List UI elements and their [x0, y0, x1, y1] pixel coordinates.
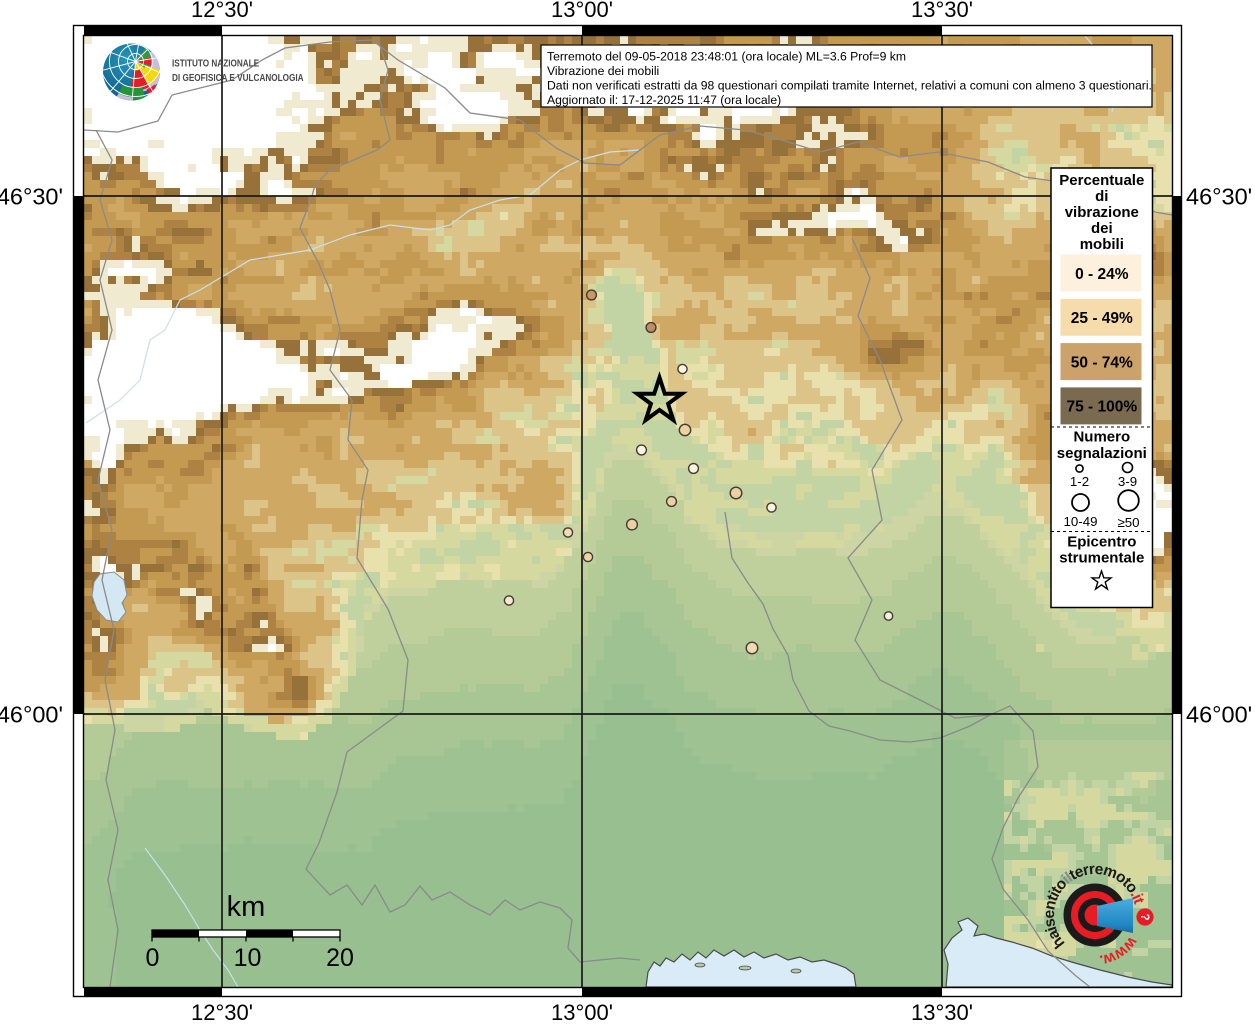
svg-text:vibrazione: vibrazione: [1065, 204, 1139, 221]
svg-text:50 - 74%: 50 - 74%: [1071, 354, 1133, 371]
svg-text:20: 20: [326, 944, 354, 972]
svg-text:0: 0: [146, 944, 160, 972]
svg-text:75 - 100%: 75 - 100%: [1066, 399, 1137, 416]
svg-text:13°30': 13°30': [911, 1000, 973, 1024]
svg-text:3-9: 3-9: [1118, 474, 1137, 489]
svg-text:10: 10: [234, 944, 262, 972]
svg-text:Numero: Numero: [1073, 429, 1130, 446]
svg-text:Terremoto del 09-05-2018 23:48: Terremoto del 09-05-2018 23:48:01 (ora l…: [547, 50, 906, 64]
svg-text:12°30': 12°30': [191, 1000, 253, 1024]
svg-text:46°30': 46°30': [1186, 184, 1252, 210]
svg-text:0 - 24%: 0 - 24%: [1075, 266, 1129, 283]
svg-text:13°30': 13°30': [911, 0, 973, 22]
svg-text:1-2: 1-2: [1070, 474, 1089, 489]
svg-text:DI GEOFISICA E VULCANOLOGIA: DI GEOFISICA E VULCANOLOGIA: [172, 72, 304, 83]
svg-text:strumentale: strumentale: [1059, 550, 1144, 567]
svg-text:13°00': 13°00': [551, 1000, 613, 1024]
svg-text:Aggiornato il: 17-12-2025 11:4: Aggiornato il: 17-12-2025 11:47 (ora loc…: [547, 93, 781, 107]
svg-text:25 - 49%: 25 - 49%: [1071, 310, 1133, 327]
svg-text:Dati non verificati estratti d: Dati non verificati estratti da 98 quest…: [547, 79, 1152, 93]
svg-text:?: ?: [1138, 913, 1150, 920]
svg-text:ISTITUTO NAZIONALE: ISTITUTO NAZIONALE: [172, 58, 259, 69]
svg-text:Percentuale: Percentuale: [1059, 172, 1144, 189]
svg-text:≥50: ≥50: [1117, 515, 1139, 530]
svg-text:46°00': 46°00': [1186, 702, 1252, 728]
svg-text:46°00': 46°00': [0, 702, 63, 728]
svg-text:km: km: [227, 891, 266, 923]
svg-text:segnalazioni: segnalazioni: [1057, 445, 1147, 462]
svg-text:10-49: 10-49: [1063, 514, 1097, 529]
svg-text:13°00': 13°00': [551, 0, 613, 22]
svg-text:di: di: [1095, 188, 1108, 205]
svg-text:mobili: mobili: [1080, 236, 1124, 253]
svg-text:46°30': 46°30': [0, 184, 63, 210]
svg-text:dei: dei: [1091, 220, 1113, 237]
svg-text:12°30': 12°30': [191, 0, 253, 22]
svg-text:Epicentro: Epicentro: [1067, 534, 1136, 551]
svg-text:Vibrazione dei mobili: Vibrazione dei mobili: [547, 64, 659, 78]
